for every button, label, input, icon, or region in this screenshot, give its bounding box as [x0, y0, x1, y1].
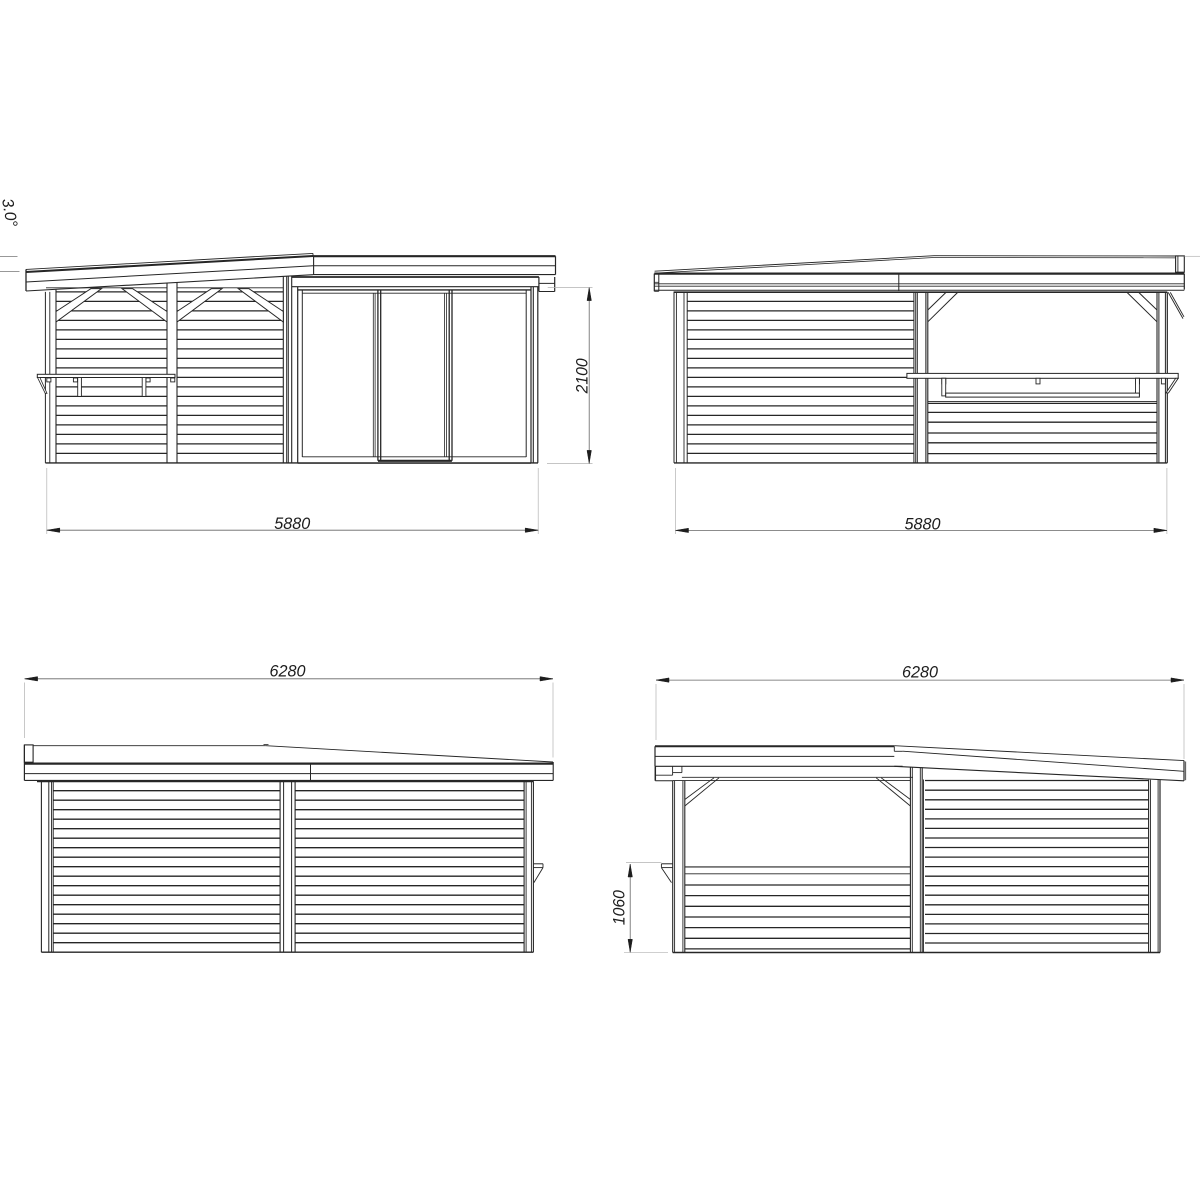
svg-text:2100: 2100	[573, 358, 592, 394]
svg-text:5880: 5880	[274, 514, 311, 533]
svg-text:5880: 5880	[905, 514, 942, 533]
svg-text:6280: 6280	[270, 661, 307, 680]
svg-text:6280: 6280	[902, 662, 939, 681]
svg-text:1060: 1060	[609, 890, 628, 925]
